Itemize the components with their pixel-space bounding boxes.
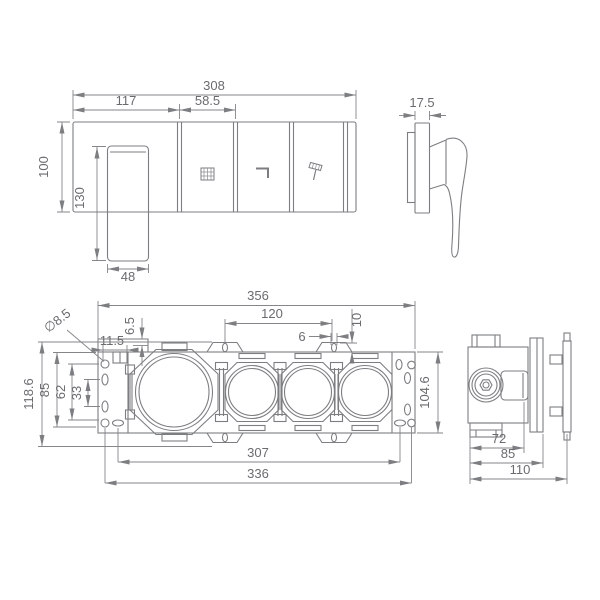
dim-front-body-height: 100 [36,122,70,212]
inlet-stub-top [472,335,500,347]
right-plate [392,352,415,433]
dim-label: 118.6 [21,378,36,410]
dim-label: 130 [72,187,87,209]
dim-label: 11.5 [100,333,124,348]
dim-label: 120 [261,306,283,321]
dim-notch-depth: 6.5 [122,317,148,366]
clip [550,355,562,364]
mixer-side-view: 17.5 [399,95,467,257]
dim-hole-diameter: ∅8.5 [41,305,104,361]
valve-opening-2 [281,354,335,431]
valve-box [468,347,528,423]
dim-flange-depth: 85 [470,434,543,468]
dim-label: 110 [510,462,531,477]
dim-plate-depth: 17.5 [399,95,446,120]
tub-spout-icon [256,169,268,179]
dim-handle-width: 48 [108,264,149,284]
dim-label: 17.5 [409,95,434,110]
front-view: 308 117 58.5 100 130 48 [36,78,356,284]
lever-handle [108,146,149,261]
bracket-band [98,352,415,433]
valve-opening-3 [338,354,392,431]
slot-hole [405,373,411,384]
dim-label: 48 [121,269,135,284]
handle-profile [430,138,468,257]
dim-label: 85 [37,383,52,397]
technical-drawing-canvas: 308 117 58.5 100 130 48 [0,0,600,600]
dim-label: 356 [247,288,269,303]
valve-opening-1 [225,354,279,431]
dim-label: 33 [69,386,84,400]
dim-label: 6.5 [122,317,137,335]
dim-oval-span: 33 [69,380,100,407]
valve-stem [469,368,503,402]
shower-valve-technical-drawing: 308 117 58.5 100 130 48 [0,0,600,600]
bracket-side-view: 72 85 110 [468,333,571,484]
main-valve-opening [126,343,219,441]
slot-hole [405,404,411,415]
slot-hole [113,420,124,426]
dim-label: 336 [247,466,269,481]
dim-label: 72 [492,431,506,446]
dim-front-section-1: 117 [73,93,180,119]
mount-hole [101,360,109,368]
slot-hole [396,360,402,370]
dim-bracket-overall-width: 356 [98,288,415,349]
dim-label: 100 [36,156,51,178]
bracket-front-view: 356 120 6 10 6.5 [21,288,443,483]
dim-label: 62 [53,385,68,399]
dim-handle-length: 130 [72,147,106,261]
dim-label: 307 [247,445,269,460]
dim-label: 104.6 [417,376,432,409]
slot-hole [102,401,108,412]
mount-hole [101,419,109,427]
panel-outline [73,122,356,212]
dim-right-plate-height: 104.6 [417,352,443,433]
dim-label: 308 [203,78,225,93]
dim-label: 10 [349,313,364,327]
dim-label: 6 [298,329,305,344]
dim-front-section-2: 58.5 [180,93,236,119]
clip [550,407,562,416]
bracket-edge-profile [563,341,571,432]
hand-shower-icon [309,163,322,181]
slot-hole [102,374,108,385]
dim-label: 117 [116,93,137,108]
dim-tab-spacing: 120 [225,306,332,344]
dim-label: 58.5 [195,93,220,108]
dim-mount-hole-span: 307 [118,427,400,462]
dim-label: 85 [501,446,515,461]
dim-body-depth: 72 [470,402,524,453]
wall-flange [408,133,416,203]
cartridge-block [501,371,528,400]
mount-hole [408,361,416,369]
mount-hole [408,419,416,427]
rain-shower-icon [201,168,214,180]
slot-hole [395,420,406,426]
plate-profile [415,123,430,213]
left-plate [101,352,128,433]
dim-overall-depth: 110 [470,434,567,484]
